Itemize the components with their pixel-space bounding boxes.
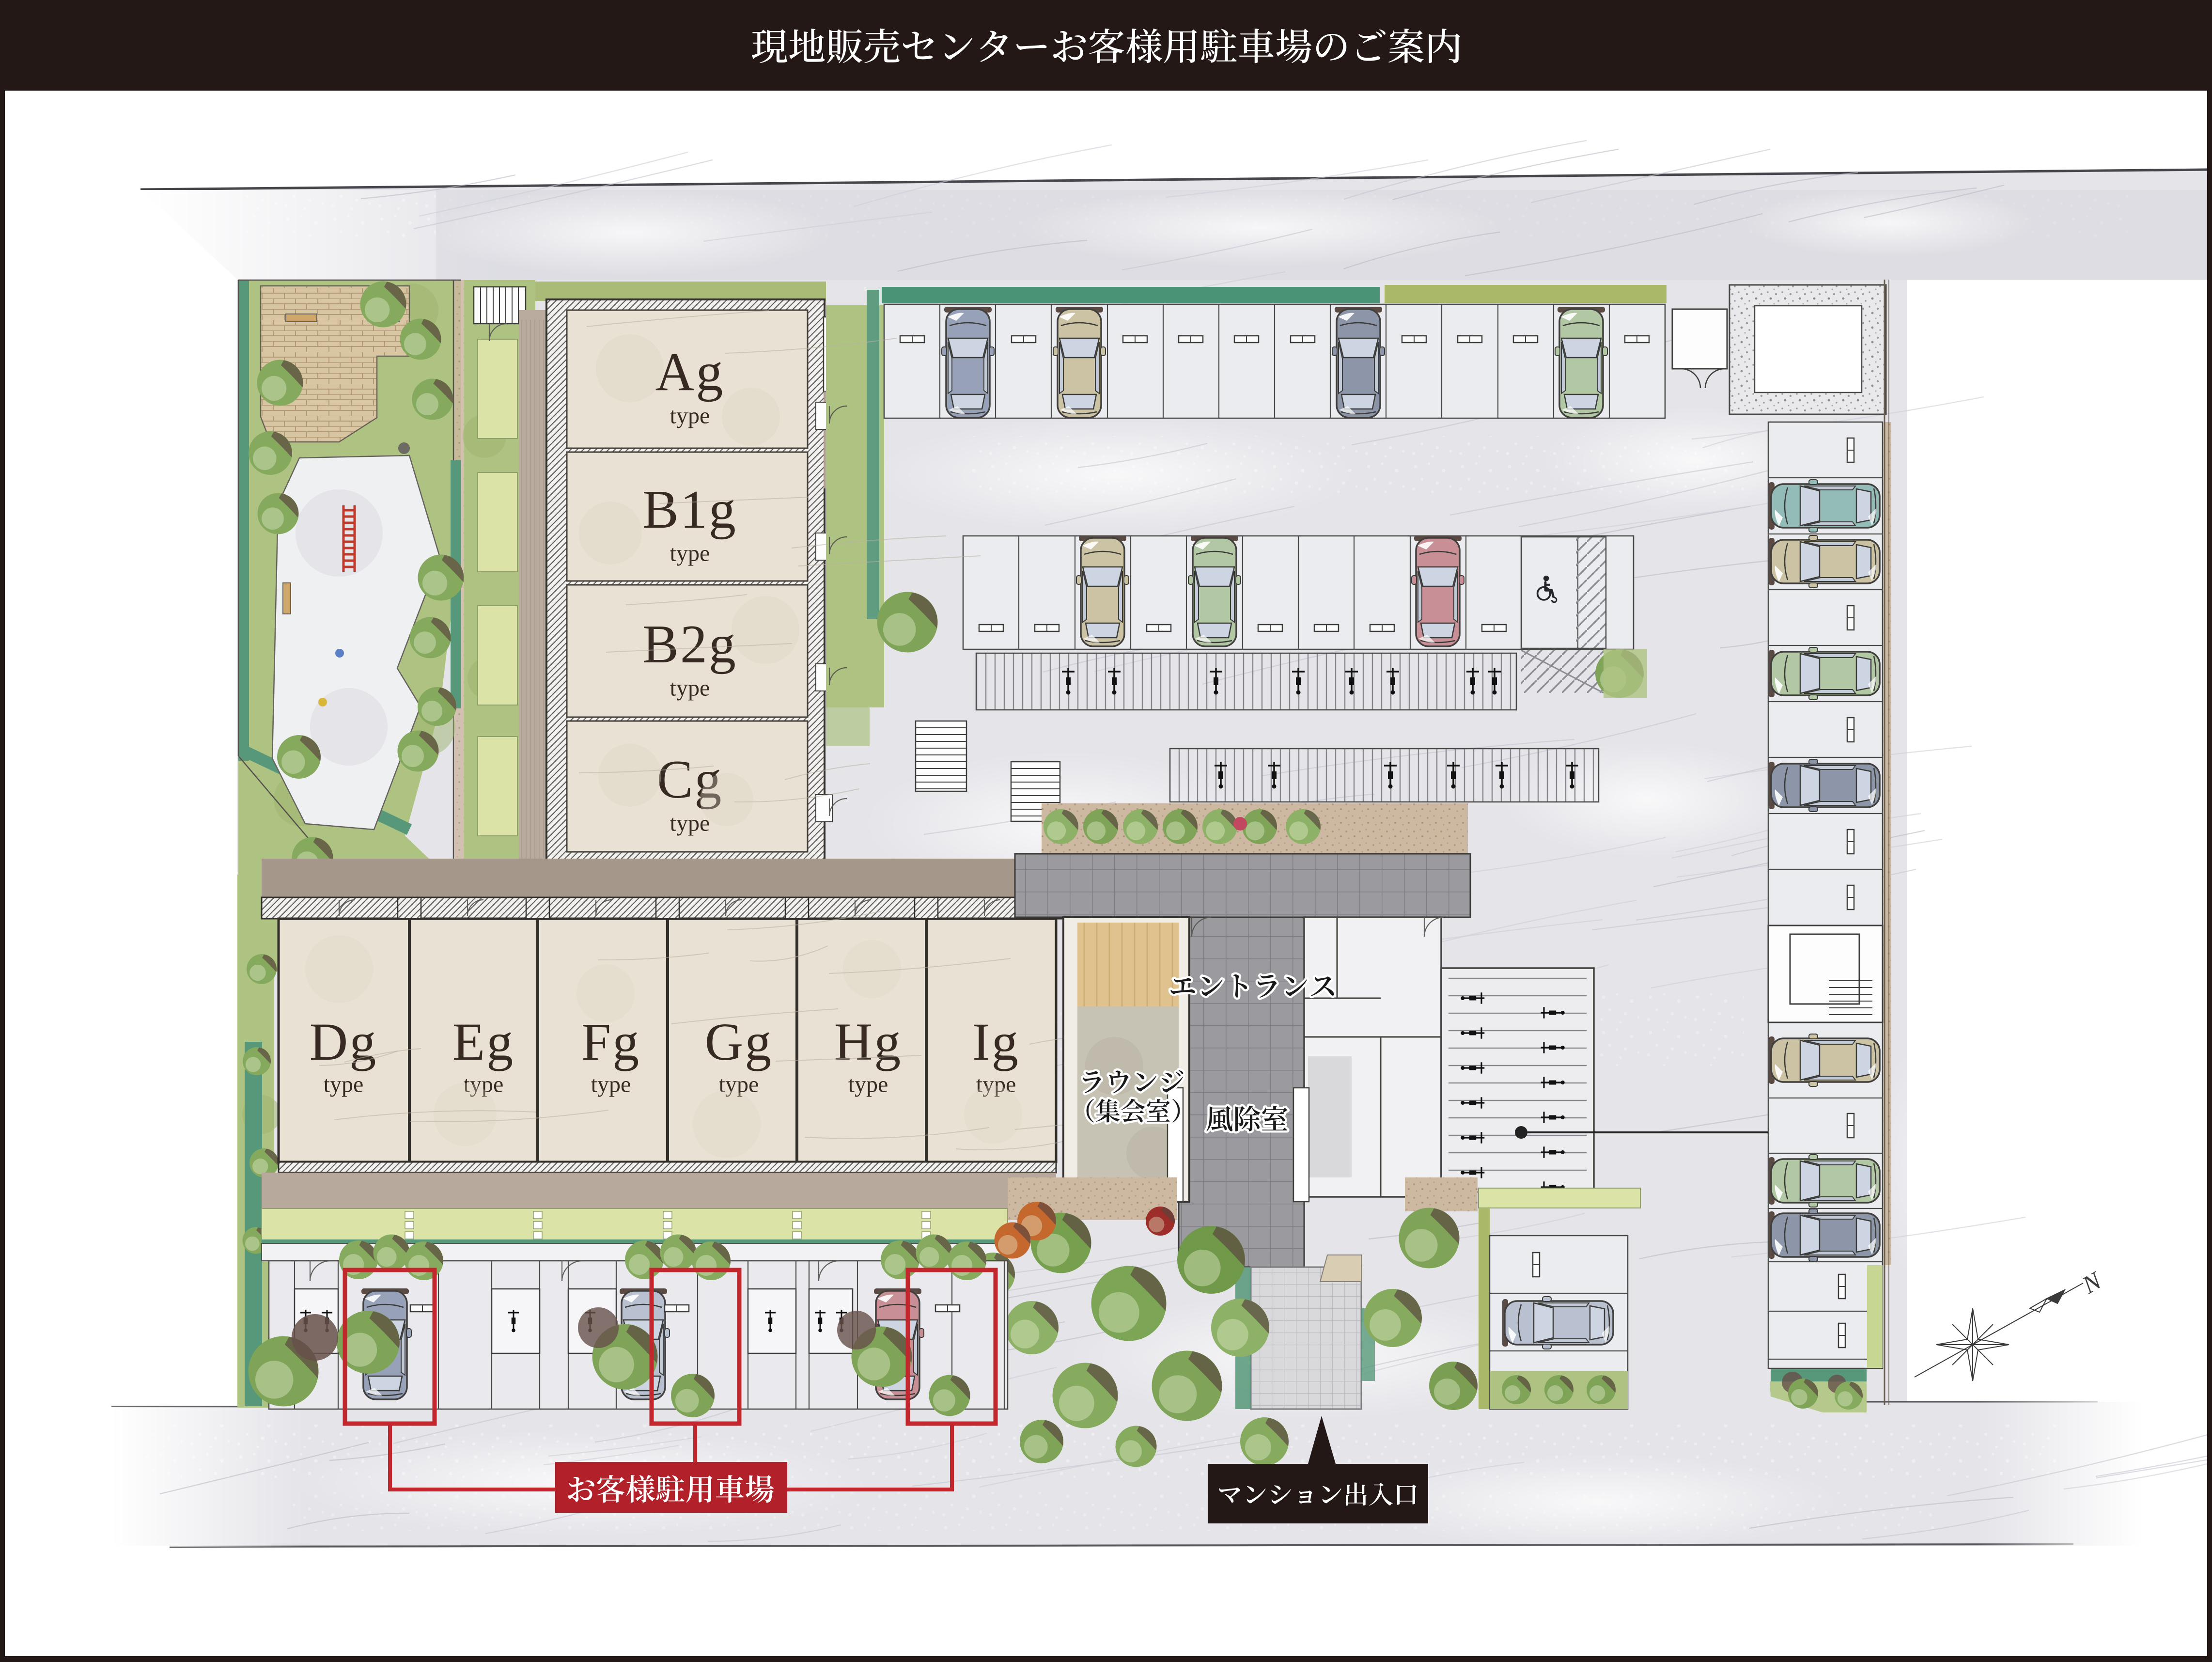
svg-text:type: type (670, 675, 710, 701)
svg-text:Hg: Hg (834, 1012, 902, 1071)
svg-text:type: type (670, 811, 710, 836)
svg-text:type: type (591, 1072, 631, 1098)
svg-text:Gg: Gg (705, 1012, 773, 1071)
svg-text:B2g: B2g (642, 614, 737, 674)
svg-text:Dg: Dg (310, 1012, 377, 1071)
svg-text:Ig: Ig (972, 1012, 1020, 1071)
svg-text:type: type (848, 1072, 888, 1098)
svg-text:B1g: B1g (642, 480, 737, 540)
svg-text:type: type (670, 403, 710, 429)
svg-text:Ag: Ag (655, 342, 725, 402)
svg-text:type: type (324, 1072, 364, 1098)
svg-text:Eg: Eg (452, 1012, 514, 1071)
svg-text:type: type (670, 541, 710, 566)
